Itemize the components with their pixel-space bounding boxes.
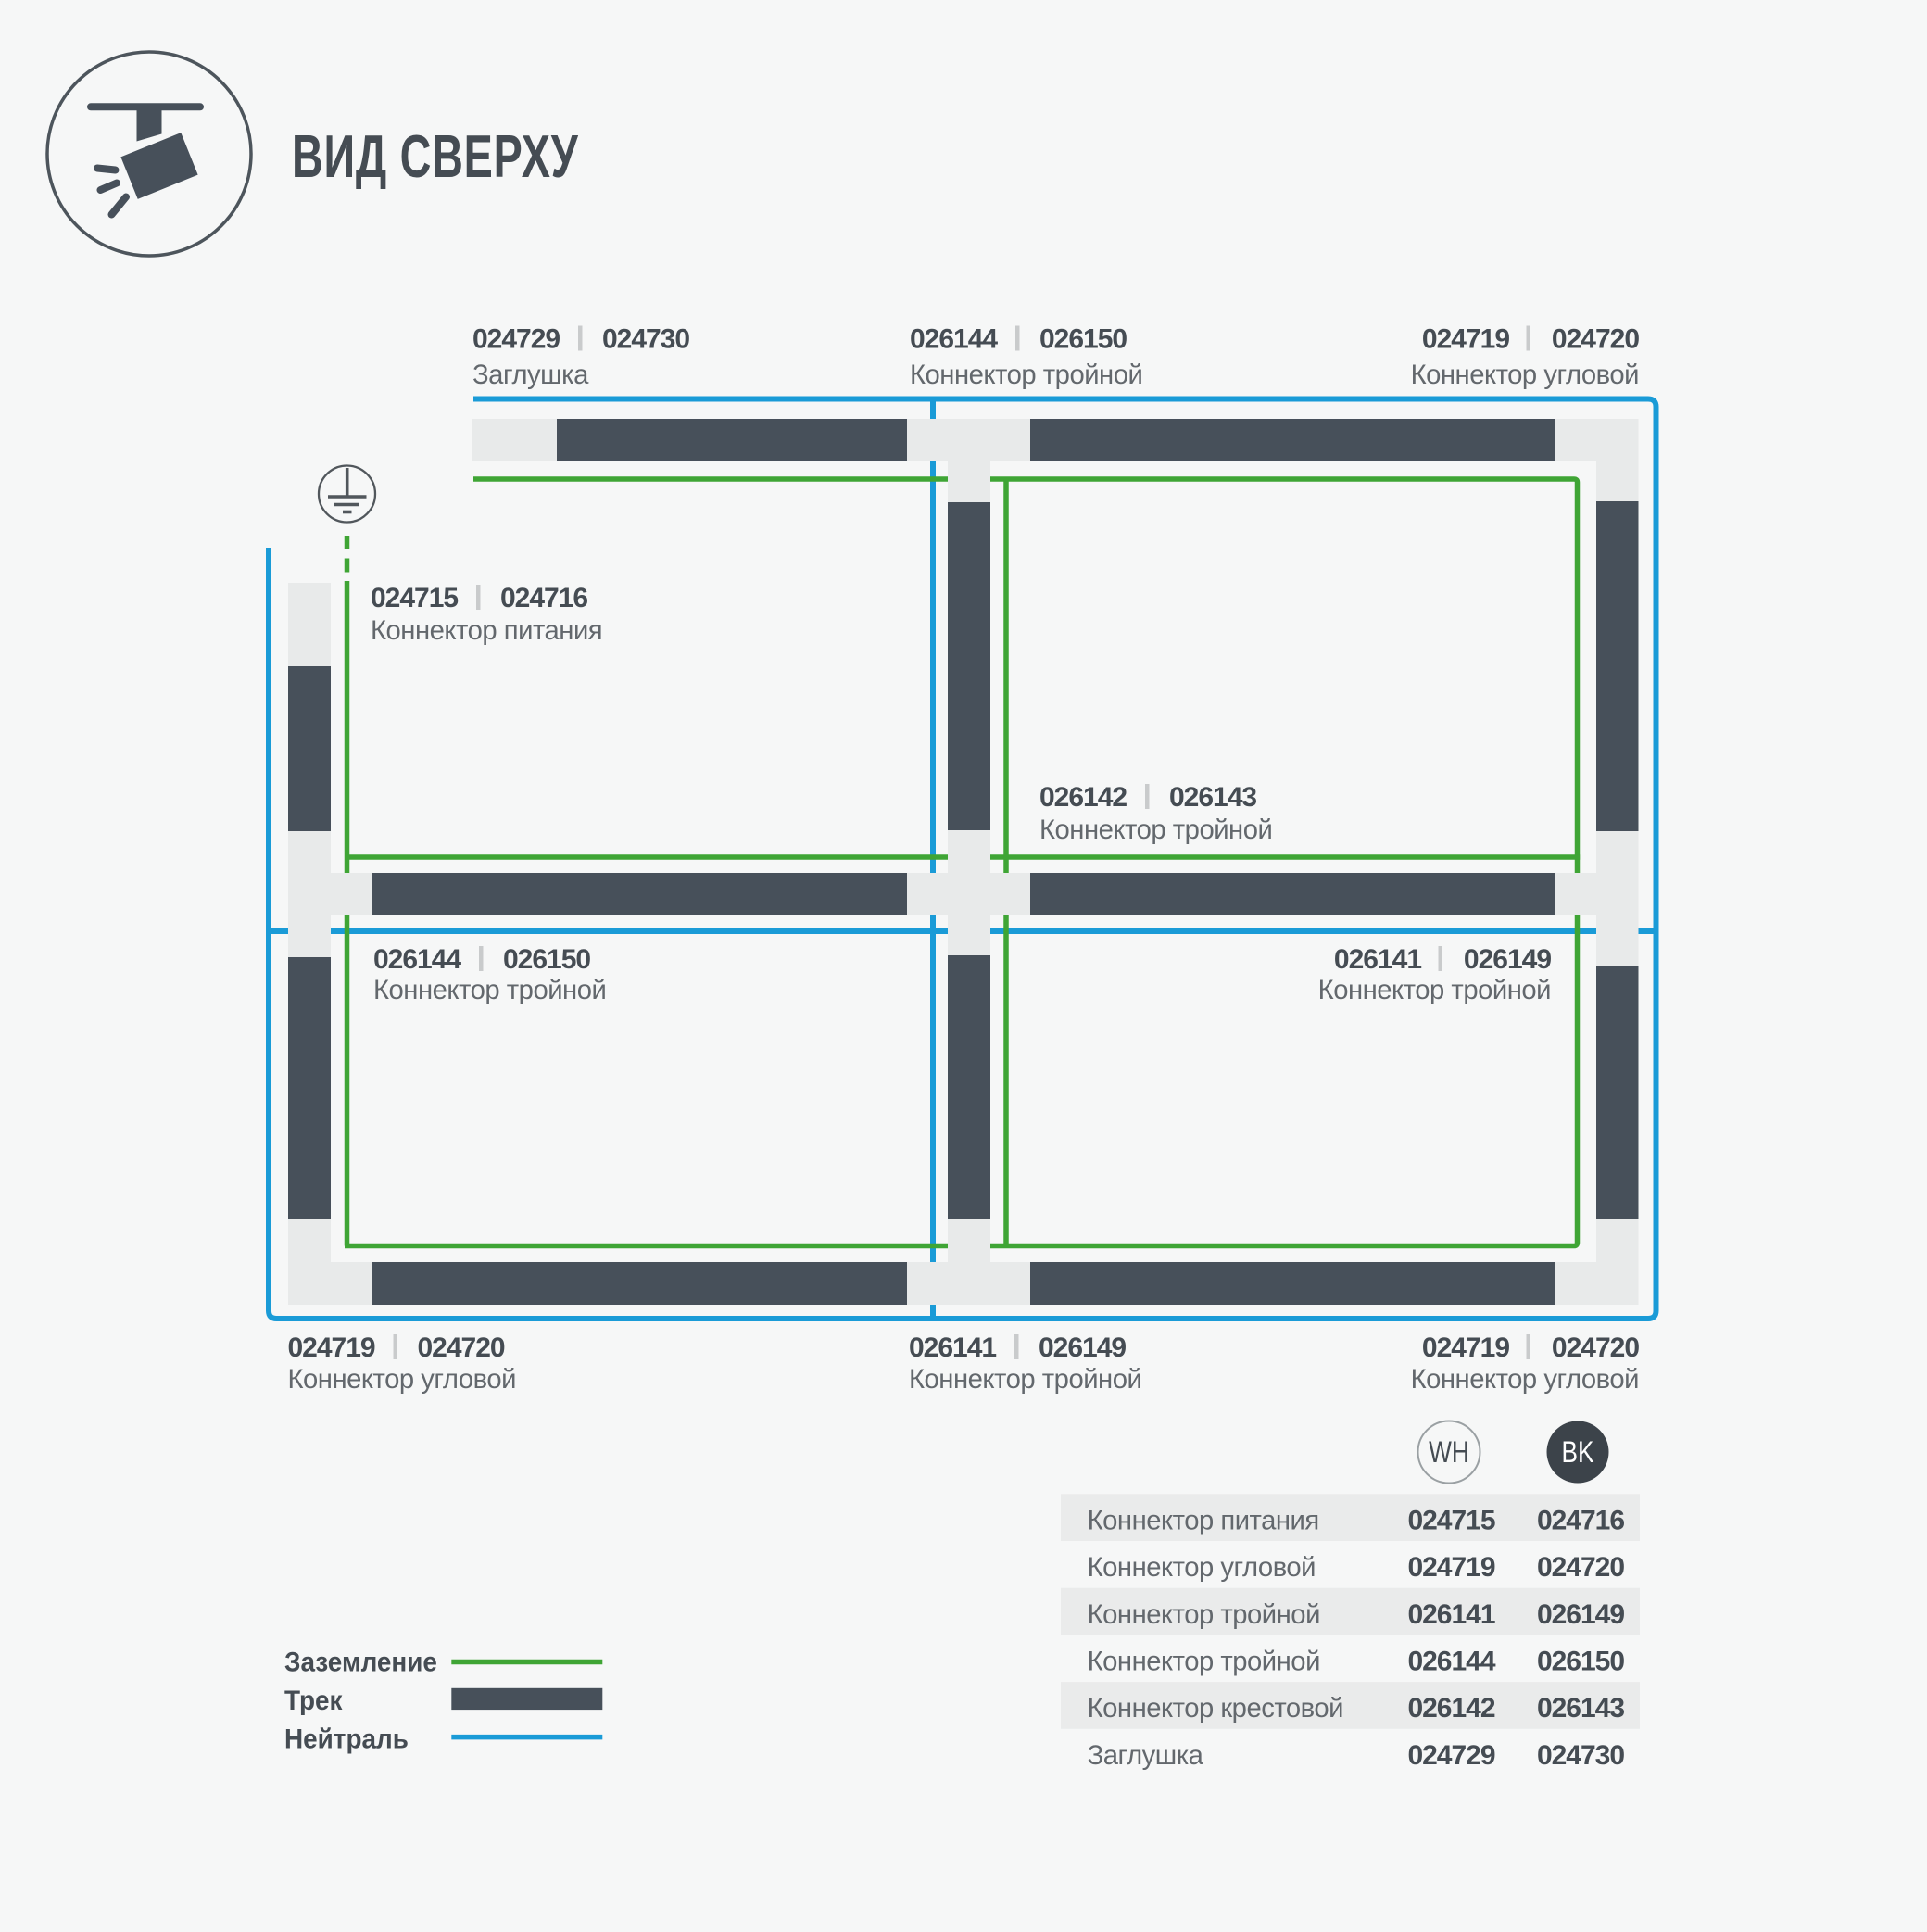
- svg-text:Заземление: Заземление: [284, 1648, 437, 1678]
- svg-text:026150: 026150: [1537, 1647, 1624, 1677]
- svg-text:Коннектор угловой: Коннектор угловой: [1411, 360, 1639, 390]
- svg-text:Коннектор тройной: Коннектор тройной: [1088, 1646, 1320, 1676]
- svg-text:024720: 024720: [1537, 1552, 1624, 1583]
- svg-text:Коннектор питания: Коннектор питания: [1088, 1505, 1319, 1535]
- svg-text:024716: 024716: [500, 583, 587, 613]
- svg-text:026149: 026149: [1464, 944, 1551, 975]
- svg-text:024715: 024715: [371, 583, 458, 613]
- svg-text:024715: 024715: [1407, 1505, 1494, 1535]
- svg-text:Коннектор крестовой: Коннектор крестовой: [1088, 1693, 1343, 1724]
- svg-text:Коннектор угловой: Коннектор угловой: [288, 1364, 516, 1395]
- svg-text:024720: 024720: [1552, 1332, 1639, 1363]
- svg-text:026141: 026141: [1407, 1599, 1494, 1630]
- svg-text:Коннектор тройной: Коннектор тройной: [1039, 814, 1272, 845]
- svg-text:Заглушка: Заглушка: [1088, 1740, 1204, 1771]
- svg-text:BK: BK: [1561, 1437, 1593, 1470]
- svg-text:Трек: Трек: [284, 1686, 343, 1716]
- svg-text:024720: 024720: [1552, 324, 1639, 355]
- svg-text:Коннектор тройной: Коннектор тройной: [373, 975, 606, 1005]
- svg-text:026144: 026144: [373, 944, 461, 975]
- svg-text:026149: 026149: [1537, 1599, 1624, 1630]
- svg-text:Коннектор угловой: Коннектор угловой: [1411, 1364, 1639, 1395]
- svg-text:Коннектор тройной: Коннектор тройной: [909, 1364, 1141, 1395]
- svg-text:024729: 024729: [472, 324, 560, 355]
- svg-text:026144: 026144: [910, 324, 998, 355]
- svg-text:Нейтраль: Нейтраль: [284, 1724, 409, 1755]
- svg-text:024720: 024720: [418, 1332, 505, 1363]
- svg-text:026143: 026143: [1169, 782, 1256, 813]
- svg-text:Заглушка: Заглушка: [472, 360, 589, 390]
- svg-text:Коннектор тройной: Коннектор тройной: [1318, 975, 1551, 1005]
- svg-text:024730: 024730: [1537, 1740, 1624, 1771]
- svg-text:Коннектор угловой: Коннектор угловой: [1088, 1552, 1316, 1583]
- svg-text:026149: 026149: [1039, 1332, 1126, 1363]
- svg-text:026150: 026150: [503, 944, 590, 975]
- svg-text:026141: 026141: [1334, 944, 1421, 975]
- svg-text:024719: 024719: [288, 1332, 375, 1363]
- svg-text:024716: 024716: [1537, 1505, 1624, 1535]
- svg-text:ВИД СВЕРХУ: ВИД СВЕРХУ: [292, 124, 578, 191]
- svg-text:WH: WH: [1429, 1437, 1469, 1470]
- svg-text:026144: 026144: [1407, 1647, 1495, 1677]
- svg-text:026142: 026142: [1039, 782, 1127, 813]
- svg-text:Коннектор питания: Коннектор питания: [371, 615, 602, 646]
- svg-text:Коннектор тройной: Коннектор тройной: [1088, 1598, 1320, 1629]
- svg-text:026142: 026142: [1407, 1693, 1494, 1724]
- svg-text:026150: 026150: [1039, 324, 1127, 355]
- svg-text:024719: 024719: [1422, 1332, 1509, 1363]
- svg-text:024719: 024719: [1407, 1552, 1494, 1583]
- svg-text:024719: 024719: [1422, 324, 1509, 355]
- svg-text:024730: 024730: [602, 324, 689, 355]
- svg-text:Коннектор тройной: Коннектор тройной: [910, 360, 1142, 390]
- svg-text:026141: 026141: [909, 1332, 996, 1363]
- svg-text:026143: 026143: [1537, 1693, 1624, 1724]
- svg-text:024729: 024729: [1407, 1740, 1494, 1771]
